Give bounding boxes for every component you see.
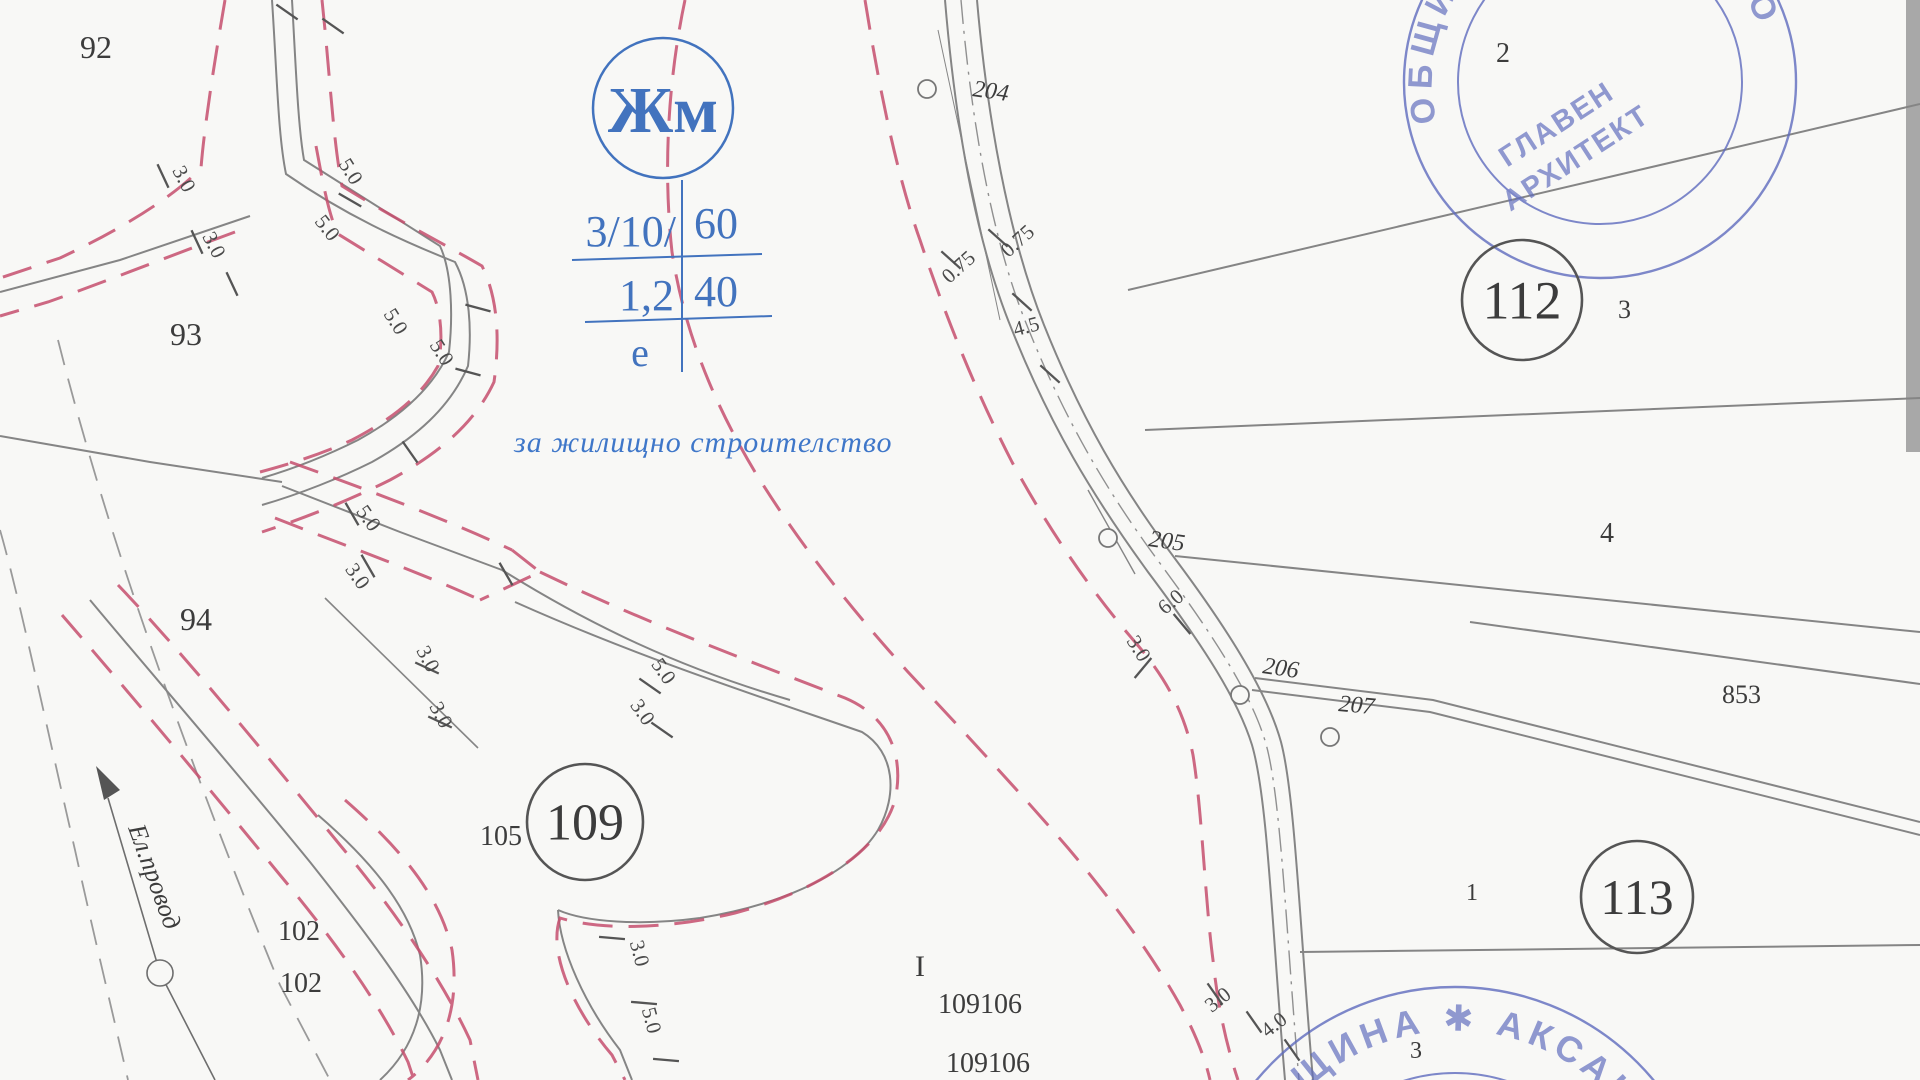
- parcel-label: 3: [1618, 295, 1631, 324]
- parcel-label: 3: [1410, 1038, 1422, 1064]
- cadastral-map-scan: Ел.провод Жм 3/10/ 60 1,2 40 е за жилищн…: [0, 0, 1920, 1080]
- parcel-label: 112: [1483, 270, 1562, 330]
- power-line-pole-icon: [147, 960, 173, 986]
- zone-note: за жилищно строителство: [513, 426, 893, 459]
- parcel-label: 109106: [946, 1048, 1030, 1079]
- parcel-label: 92: [80, 29, 112, 65]
- survey-point-icon: [1321, 728, 1339, 746]
- parcel-label: 102: [280, 968, 322, 999]
- parcel-label: 113: [1600, 869, 1673, 925]
- zone-symbol: Жм: [608, 74, 718, 147]
- parcel-label: 206: [1261, 653, 1300, 684]
- zone-row2-left: 1,2: [619, 271, 674, 320]
- zone-row2-right: 40: [694, 267, 738, 316]
- survey-point-icon: [1099, 529, 1117, 547]
- survey-point-icon: [918, 80, 936, 98]
- parcel-label: 1: [1466, 880, 1478, 906]
- parcel-label: 4: [1600, 518, 1614, 549]
- parcel-label: 105: [480, 821, 522, 852]
- cadastral-map: Ел.провод Жм 3/10/ 60 1,2 40 е за жилищн…: [0, 0, 1920, 1080]
- parcel-label: 109106: [938, 989, 1022, 1020]
- zone-row1-left: 3/10/: [586, 207, 677, 256]
- zone-row1-right: 60: [694, 199, 738, 248]
- parcel-label: 207: [1337, 691, 1376, 720]
- parcel-label: 94: [180, 601, 212, 637]
- parcel-label: 2: [1496, 38, 1510, 69]
- parcel-label: 102: [278, 916, 320, 947]
- parcel-label: 853: [1722, 680, 1761, 709]
- parcel-label: 93: [170, 316, 202, 352]
- zone-bottom: е: [631, 330, 649, 375]
- parcel-label: 109: [546, 795, 624, 852]
- parcel-label: 204: [971, 76, 1010, 107]
- parcel-label: I: [915, 950, 925, 983]
- parcel-label: 205: [1147, 526, 1186, 557]
- survey-point-icon: [1231, 686, 1249, 704]
- scan-edge-shadow: [1906, 0, 1920, 452]
